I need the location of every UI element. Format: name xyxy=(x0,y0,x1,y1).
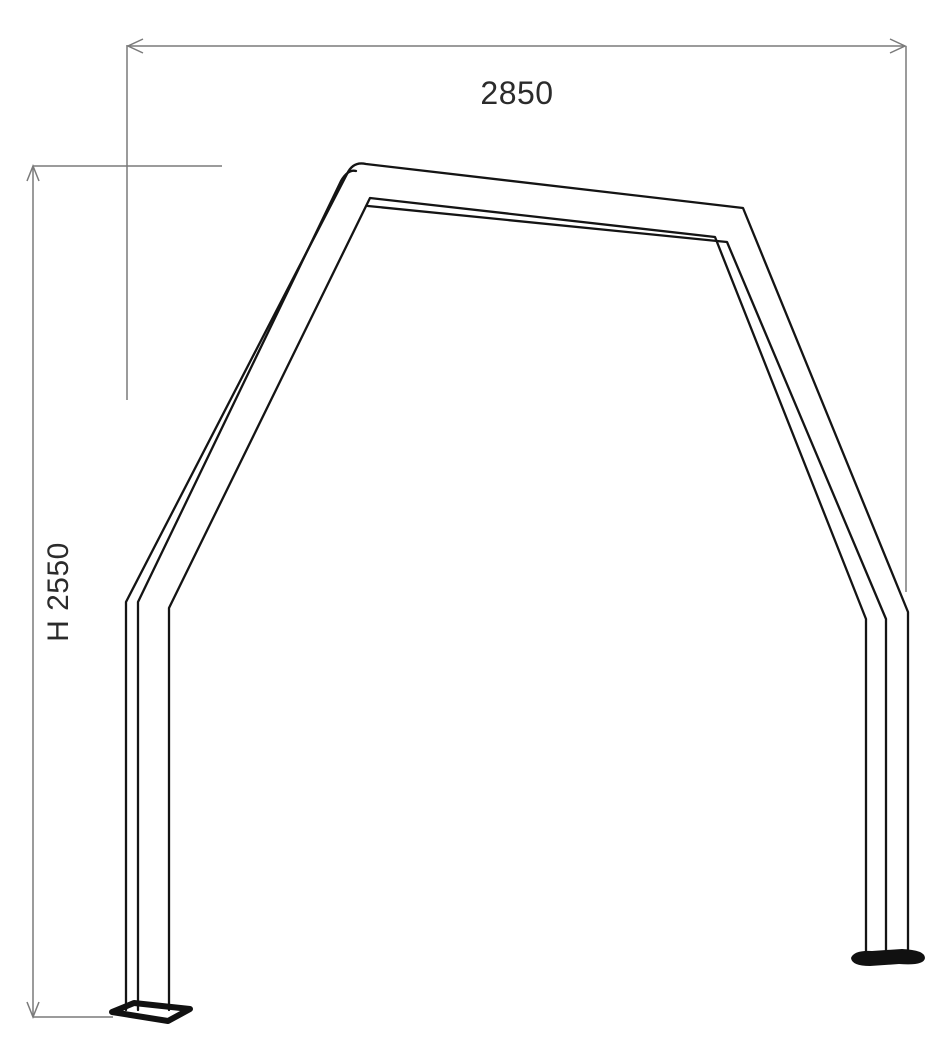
dimension-lines xyxy=(27,39,906,1017)
right-base-plate xyxy=(851,949,925,966)
left-base-plate xyxy=(112,1003,190,1021)
frame-crossbar-bottom-edge xyxy=(368,206,886,954)
frame-left-middle-edge xyxy=(138,171,356,1010)
technical-drawing-canvas: 2850 H 2550 xyxy=(0,0,950,1037)
frame-structure xyxy=(126,163,908,1010)
frame-outer-edge xyxy=(126,163,908,1010)
arch-frame-drawing: 2850 H 2550 xyxy=(0,0,950,1037)
base-plates xyxy=(112,949,925,1021)
height-dimension-label: H 2550 xyxy=(42,542,75,642)
width-dimension-label: 2850 xyxy=(480,75,553,111)
